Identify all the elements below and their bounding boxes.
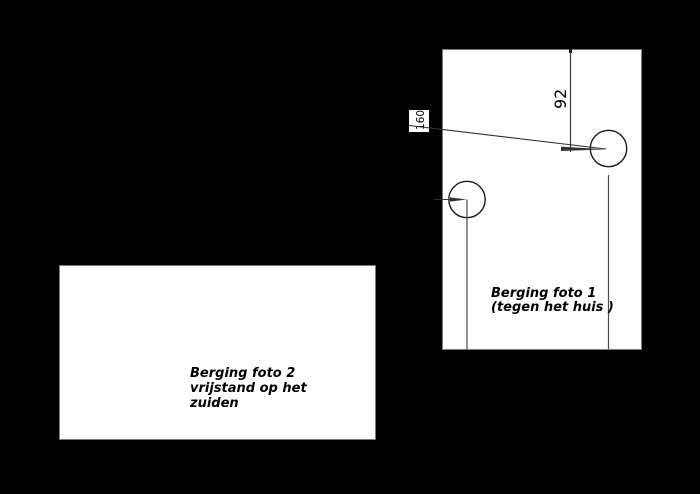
dimension-160-label: 160 (415, 110, 427, 130)
drawing-canvas: 92 160 Berging foto 1 (tegen het huis ) … (0, 0, 700, 494)
photo-label-berging-1: Berging foto 1 (tegen het huis ) (491, 287, 614, 315)
photo-label-berging-2: Berging foto 2 vrijstand op het zuiden (190, 366, 307, 411)
dimension-160-box (409, 110, 429, 132)
photo-frame-berging-2 (59, 265, 376, 440)
